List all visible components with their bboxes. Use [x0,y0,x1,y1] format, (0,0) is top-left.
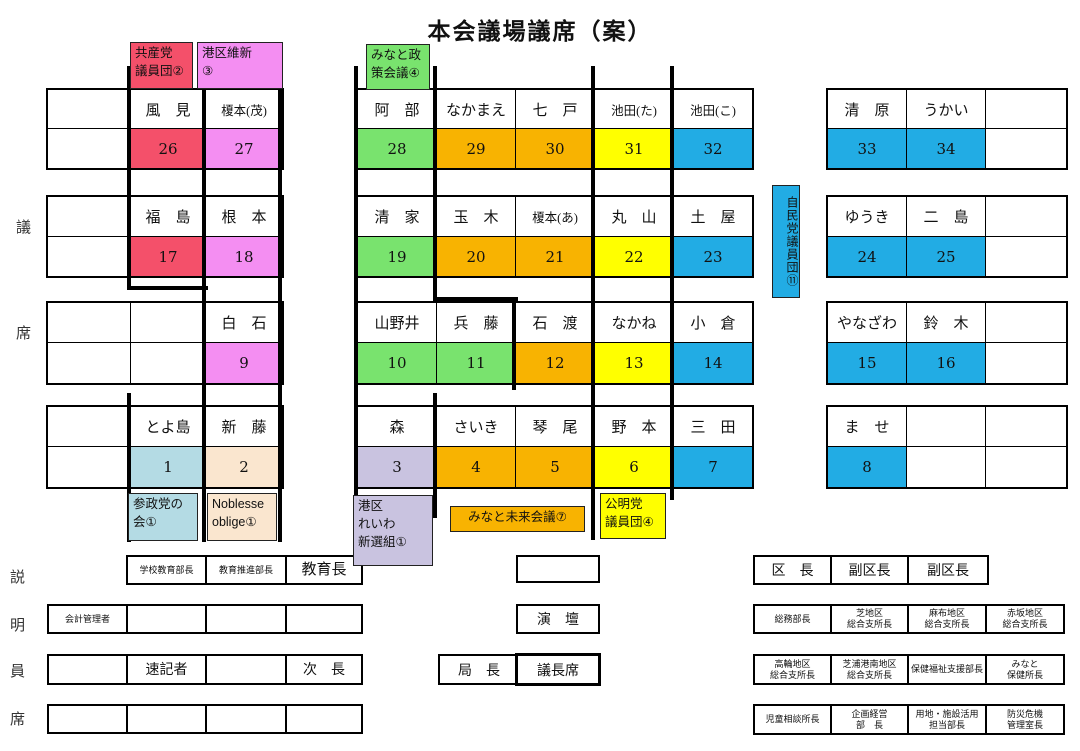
party-label-komeito: 公明党 議員団④ [600,493,666,539]
seat-name-cell: 野 本 [595,407,674,447]
official-seat-cell: 教育推進部長 [207,557,287,583]
seat-number-cell: 15 [828,343,907,383]
seat-name-cell: 阿 部 [358,90,437,129]
side-label-char: 説 [10,566,25,587]
seat-name-cell: 兵 藤 [437,303,516,343]
seat-name-cell [48,407,131,447]
seat-name-cell [131,303,206,343]
seat-number-cell [986,237,1066,276]
seat-name-cell [907,407,986,447]
official-seat-cell [207,606,287,632]
officials-right-row: 総務部長芝地区 総合支所長麻布地区 総合支所長赤坂地区 総合支所長 [753,604,1065,634]
officials-left-row: 速記者次 長 [47,654,363,685]
seat-name-cell: 琴 尾 [516,407,595,447]
seat-block-r2-mid: 清 家玉 木榎本(あ)丸 山土 屋1920212223 [356,195,754,278]
seat-number-cell: 29 [437,129,516,168]
seat-name-cell: 鈴 木 [907,303,986,343]
seat-number-cell: 22 [595,237,674,276]
seat-number-cell: 27 [206,129,282,168]
official-seat-cell: 赤坂地区 総合支所長 [987,606,1063,632]
official-seat-cell: 区 長 [755,557,832,583]
seat-name-cell [986,90,1066,129]
party-label-noblesse: Noblesse oblige① [207,493,277,541]
side-label-char: 明 [10,614,25,635]
group-divider-line [512,297,516,390]
seat-number-cell: 13 [595,343,674,383]
seat-number-cell: 32 [674,129,752,168]
party-label-sanseito: 参政党の 会① [128,493,198,541]
seat-block-r3-mid: 山野井兵 藤石 渡なかね小 倉1011121314 [356,301,754,385]
seat-number-cell: 3 [358,447,437,487]
seat-name-cell: ま せ [828,407,907,447]
page-title: 本会議場議席（案） [0,12,1080,46]
official-seat-cell: 芝浦港南地区 総合支所長 [832,656,909,683]
side-label-char: 員 [10,660,25,681]
seat-name-cell: 榎本(茂) [206,90,282,129]
seat-name-cell [986,197,1066,237]
seat-number-cell: 1 [131,447,206,487]
seat-number-cell [48,343,131,383]
seat-number-cell: 24 [828,237,907,276]
seat-block-r4-mid: 森さいき琴 尾野 本三 田34567 [356,405,754,489]
seat-name-cell [48,303,131,343]
seat-name-cell: 森 [358,407,437,447]
group-divider-line [591,66,595,540]
party-label-minato-mirai: みなと未来会議⑦ [450,506,585,532]
side-label-char: 席 [16,322,31,343]
official-seat-cell [49,656,128,683]
seat-number-cell: 7 [674,447,752,487]
officials-left-row [47,704,363,734]
seat-number-cell [48,129,131,168]
official-seat-cell [207,656,287,683]
official-seat-cell: 速記者 [128,656,207,683]
seat-number-cell: 11 [437,343,516,383]
seat-number-cell: 8 [828,447,907,487]
official-seat-cell: 次 長 [287,656,361,683]
group-divider-line [202,66,206,542]
seat-name-cell: 福 島 [131,197,206,237]
seat-number-cell: 33 [828,129,907,168]
seat-number-cell: 28 [358,129,437,168]
official-seat-cell: 保健福祉支援部長 [909,656,987,683]
chair-seat: 議長席 [515,653,601,686]
group-divider-line [670,66,674,500]
seat-number-cell [48,447,131,487]
officials-right-row: 高輪地区 総合支所長芝浦港南地区 総合支所長保健福祉支援部長みなと 保健所長 [753,654,1065,685]
seat-number-cell: 21 [516,237,595,276]
seat-name-cell: なかまえ [437,90,516,129]
seat-name-cell: さいき [437,407,516,447]
seat-number-cell: 31 [595,129,674,168]
assembly-seating-chart: 本会議場議席（案） 議席説明員席風 見榎本(茂)2627阿 部なかまえ七 戸池田… [0,0,1080,751]
seat-name-cell [48,90,131,129]
seat-name-cell: やなざわ [828,303,907,343]
seat-number-cell: 16 [907,343,986,383]
seat-number-cell: 10 [358,343,437,383]
group-divider-line [127,286,208,290]
seat-number-cell: 23 [674,237,752,276]
officials-right-row: 児童相談所長企画経営 部 長用地・施設活用 担当部長防災危機 管理室長 [753,704,1065,735]
seat-number-cell [907,447,986,487]
seat-number-cell [986,447,1066,487]
seat-block-r3-right: やなざわ鈴 木1516 [826,301,1068,385]
official-seat-cell [128,606,207,632]
seat-number-cell [986,343,1066,383]
official-seat-cell: 防災危機 管理室長 [987,706,1063,733]
seat-number-cell: 9 [206,343,282,383]
seat-name-cell: 山野井 [358,303,437,343]
official-seat-cell: 副区長 [909,557,987,583]
officials-left-row: 会計管理者 [47,604,363,634]
seat-number-cell: 19 [358,237,437,276]
seat-number-cell: 2 [206,447,282,487]
party-label-reiwa: 港区 れいわ 新選組① [353,495,433,566]
official-seat-cell: 高輪地区 総合支所長 [755,656,832,683]
official-seat-cell [207,706,287,732]
official-seat-cell: 総務部長 [755,606,832,632]
group-divider-line [278,66,282,542]
officials-left-row: 学校教育部長教育推進部長教育長 [126,555,363,585]
official-seat-cell [287,606,361,632]
party-label-jiminto: 自民党議員団⑪ [772,185,800,298]
seat-block-r1-right: 清 原うかい3334 [826,88,1068,170]
seat-name-cell: 白 石 [206,303,282,343]
seat-block-r3-left: 白 石9 [46,301,284,385]
official-seat-cell: みなと 保健所長 [987,656,1063,683]
seat-name-cell: 新 藤 [206,407,282,447]
group-divider-line [433,66,437,301]
seat-name-cell: 池田(こ) [674,90,752,129]
seat-name-cell: 清 原 [828,90,907,129]
seat-name-cell: 玉 木 [437,197,516,237]
seat-number-cell: 14 [674,343,752,383]
official-seat-cell: 教育長 [287,557,361,583]
official-seat-cell: 副区長 [832,557,909,583]
seat-number-cell: 26 [131,129,206,168]
seat-number-cell: 6 [595,447,674,487]
seat-name-cell: 風 見 [131,90,206,129]
seat-name-cell: ゆうき [828,197,907,237]
seat-block-r4-right: ま せ8 [826,405,1068,489]
seat-block-r2-left: 福 島根 本1718 [46,195,284,278]
seat-block-r2-right: ゆうき二 島2425 [826,195,1068,278]
group-divider-line [433,297,518,301]
seat-name-cell: 小 倉 [674,303,752,343]
side-label-char: 席 [10,708,25,729]
official-seat-cell [287,706,361,732]
seat-name-cell: 池田(た) [595,90,674,129]
group-divider-line [354,66,358,545]
seat-number-cell: 18 [206,237,282,276]
official-seat-cell: 会計管理者 [49,606,128,632]
seat-number-cell: 30 [516,129,595,168]
official-seat-cell: 学校教育部長 [128,557,207,583]
seat-number-cell [131,343,206,383]
seat-number-cell: 34 [907,129,986,168]
seat-name-cell: 七 戸 [516,90,595,129]
seat-name-cell [986,407,1066,447]
secretary-general-seat: 局 長 [438,654,520,685]
seat-name-cell [986,303,1066,343]
seat-number-cell [48,237,131,276]
group-divider-line [127,66,131,289]
seat-number-cell: 12 [516,343,595,383]
seat-number-cell [986,129,1066,168]
officials-right-row: 区 長副区長副区長 [753,555,989,585]
seat-name-cell: 三 田 [674,407,752,447]
seat-block-r4-left: とよ島新 藤12 [46,405,284,489]
seat-number-cell: 4 [437,447,516,487]
seat-name-cell: 石 渡 [516,303,595,343]
party-label-minatoku-ishin: 港区維新 ③ [197,42,283,89]
seat-name-cell: 清 家 [358,197,437,237]
official-seat-cell: 児童相談所長 [755,706,832,733]
official-seat-cell: 麻布地区 総合支所長 [909,606,987,632]
official-seat-cell: 用地・施設活用 担当部長 [909,706,987,733]
seat-number-cell: 5 [516,447,595,487]
seat-name-cell: 二 島 [907,197,986,237]
group-divider-line [433,393,437,518]
seat-name-cell: なかね [595,303,674,343]
seat-number-cell: 25 [907,237,986,276]
seat-name-cell: とよ島 [131,407,206,447]
speaker-podium: 演 壇 [516,604,600,634]
podium-upper-box [516,555,600,583]
seat-name-cell: 丸 山 [595,197,674,237]
seat-block-r1-left: 風 見榎本(茂)2627 [46,88,284,170]
seat-name-cell: うかい [907,90,986,129]
party-label-minato-seisaku: みなと政 策会議④ [366,44,430,90]
party-label-kyosanto: 共産党 議員団② [130,42,193,89]
official-seat-cell: 企画経営 部 長 [832,706,909,733]
seat-number-cell: 20 [437,237,516,276]
seat-name-cell: 榎本(あ) [516,197,595,237]
seat-block-r1-mid: 阿 部なかまえ七 戸池田(た)池田(こ)2829303132 [356,88,754,170]
official-seat-cell [128,706,207,732]
seat-name-cell: 根 本 [206,197,282,237]
official-seat-cell: 芝地区 総合支所長 [832,606,909,632]
side-label-char: 議 [16,216,31,237]
seat-name-cell [48,197,131,237]
official-seat-cell [49,706,128,732]
seat-number-cell: 17 [131,237,206,276]
seat-name-cell: 土 屋 [674,197,752,237]
